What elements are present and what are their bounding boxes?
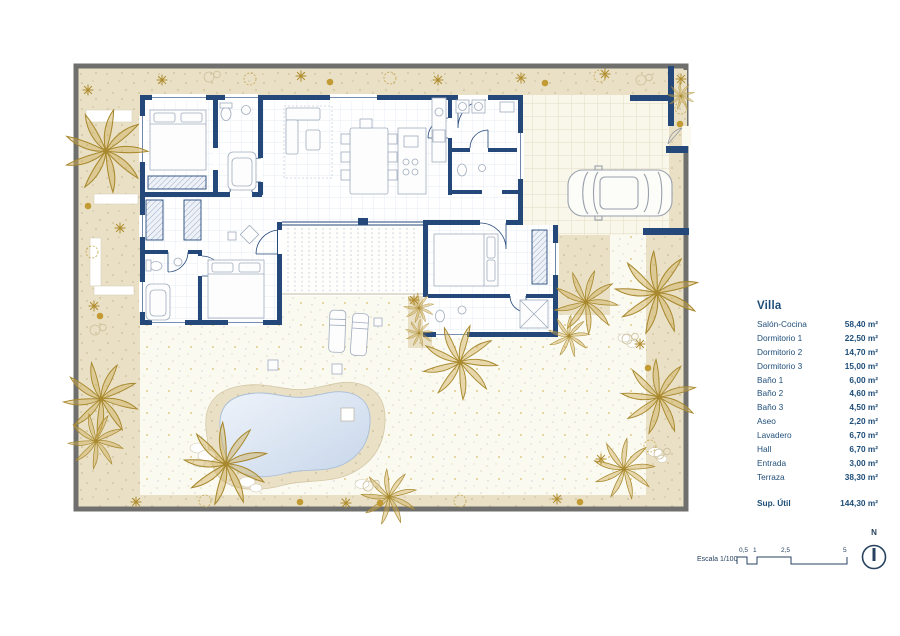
legend-title: Villa — [757, 300, 878, 312]
room-label: Dormitorio 2 — [757, 347, 802, 357]
room-area: 2,20 m² — [849, 416, 878, 426]
north-label: N — [855, 528, 893, 537]
room-area: 6,00 m² — [849, 375, 878, 385]
legend-row: Baño 16,00 m² — [757, 375, 878, 389]
room-area: 4,50 m² — [849, 402, 878, 412]
floor-plan-sheet: Villa Salón-Cocina58,40 m² Dormitorio 12… — [0, 0, 900, 636]
total-area: 144,30 m² — [840, 498, 878, 508]
legend-row: Dormitorio 315,00 m² — [757, 361, 878, 375]
scale-bar: Escala 1/100 0,5 1 2,5 5 — [695, 545, 865, 575]
room-label: Salón-Cocina — [757, 319, 807, 329]
compass-icon — [856, 538, 892, 574]
legend-row: Salón-Cocina58,40 m² — [757, 319, 878, 333]
room-label: Baño 1 — [757, 375, 783, 385]
legend-row: Aseo2,20 m² — [757, 416, 878, 430]
total-label: Sup. Útil — [757, 498, 791, 508]
room-area: 38,30 m² — [845, 472, 878, 482]
room-label: Aseo — [757, 416, 776, 426]
room-label: Lavadero — [757, 430, 792, 440]
shrub-star-icon — [83, 85, 94, 96]
legend-row: Dormitorio 122,50 m² — [757, 333, 878, 347]
bush-dot-icon — [327, 79, 334, 86]
room-area: 14,70 m² — [845, 347, 878, 357]
room-area: 22,50 m² — [845, 333, 878, 343]
room-label: Dormitorio 1 — [757, 333, 802, 343]
legend-row: Baño 24,60 m² — [757, 388, 878, 402]
legend-row: Dormitorio 214,70 m² — [757, 347, 878, 361]
room-area: 58,40 m² — [845, 319, 878, 329]
room-label: Baño 2 — [757, 388, 783, 398]
room-area: 6,70 m² — [849, 430, 878, 440]
covered-porch — [282, 222, 423, 296]
legend-row: Entrada3,00 m² — [757, 458, 878, 472]
room-area: 15,00 m² — [845, 361, 878, 371]
legend-row: Hall6,70 m² — [757, 444, 878, 458]
scale-tick: 1 — [753, 547, 757, 554]
scale-tick: 0,5 — [739, 547, 748, 554]
legend-row: Baño 34,50 m² — [757, 402, 878, 416]
room-label: Dormitorio 3 — [757, 361, 802, 371]
room-area: 6,70 m² — [849, 444, 878, 454]
room-area: 3,00 m² — [849, 458, 878, 468]
legend-rows: Salón-Cocina58,40 m² Dormitorio 122,50 m… — [757, 319, 878, 486]
entrance-gate — [682, 126, 691, 146]
scale-bar-graphic — [735, 555, 853, 567]
room-label: Hall — [757, 444, 771, 454]
scale-tick: 5 — [843, 547, 847, 554]
room-label: Entrada — [757, 458, 786, 468]
legend-total: Sup. Útil 144,30 m² — [757, 498, 878, 508]
legend-row: Terraza38,30 m² — [757, 472, 878, 486]
room-label: Baño 3 — [757, 402, 783, 412]
scale-label: Escala 1/100 — [697, 556, 737, 563]
compass: N — [855, 528, 893, 578]
scale-tick: 2,5 — [781, 547, 790, 554]
car-icon — [568, 166, 672, 220]
room-label: Terraza — [757, 472, 785, 482]
legend-panel: Villa Salón-Cocina58,40 m² Dormitorio 12… — [757, 300, 878, 508]
legend-row: Lavadero6,70 m² — [757, 430, 878, 444]
room-area: 4,60 m² — [849, 388, 878, 398]
